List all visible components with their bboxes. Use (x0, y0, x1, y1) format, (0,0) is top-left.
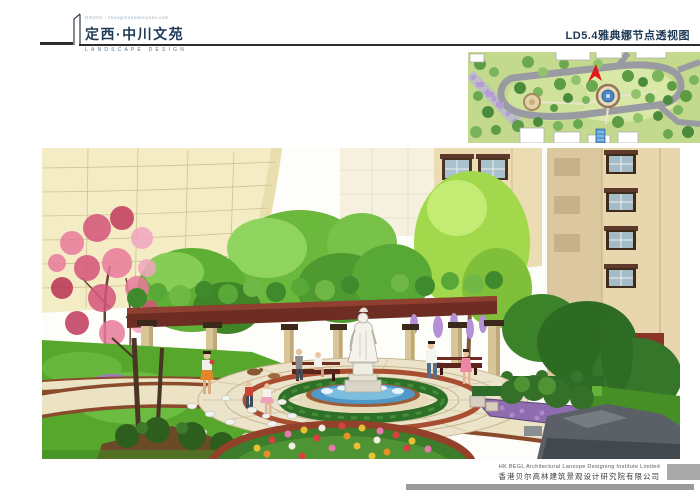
logo-tagline: DINGXI · zhongchuanwenyuan.com (85, 15, 169, 20)
header-rule (79, 44, 700, 46)
perspective-drawing (42, 148, 680, 459)
footer-gray-bar (406, 484, 694, 490)
logo-subtitle: LANDSCAPE DESIGN (85, 47, 187, 53)
master-plan-drawing (468, 52, 700, 143)
footer-gray-block (667, 464, 700, 480)
footer-company-cn: 香港贝尔高林建筑景观设计研究院有限公司 (499, 471, 661, 482)
project-title: 定西·中川文苑 (85, 24, 184, 44)
footer-company-en: HK BEGL Architectural Lansope Designing … (499, 464, 660, 470)
master-plan-inset (468, 52, 700, 143)
sheet-title: LD5.4雅典娜节点透视图 (566, 27, 690, 43)
logo-mark-icon (70, 13, 84, 46)
perspective-rendering (42, 148, 680, 459)
header-left-line (40, 42, 73, 45)
presentation-sheet: DINGXI · zhongchuanwenyuan.com 定西·中川文苑 L… (0, 0, 700, 495)
plan-athena-node (597, 85, 619, 107)
